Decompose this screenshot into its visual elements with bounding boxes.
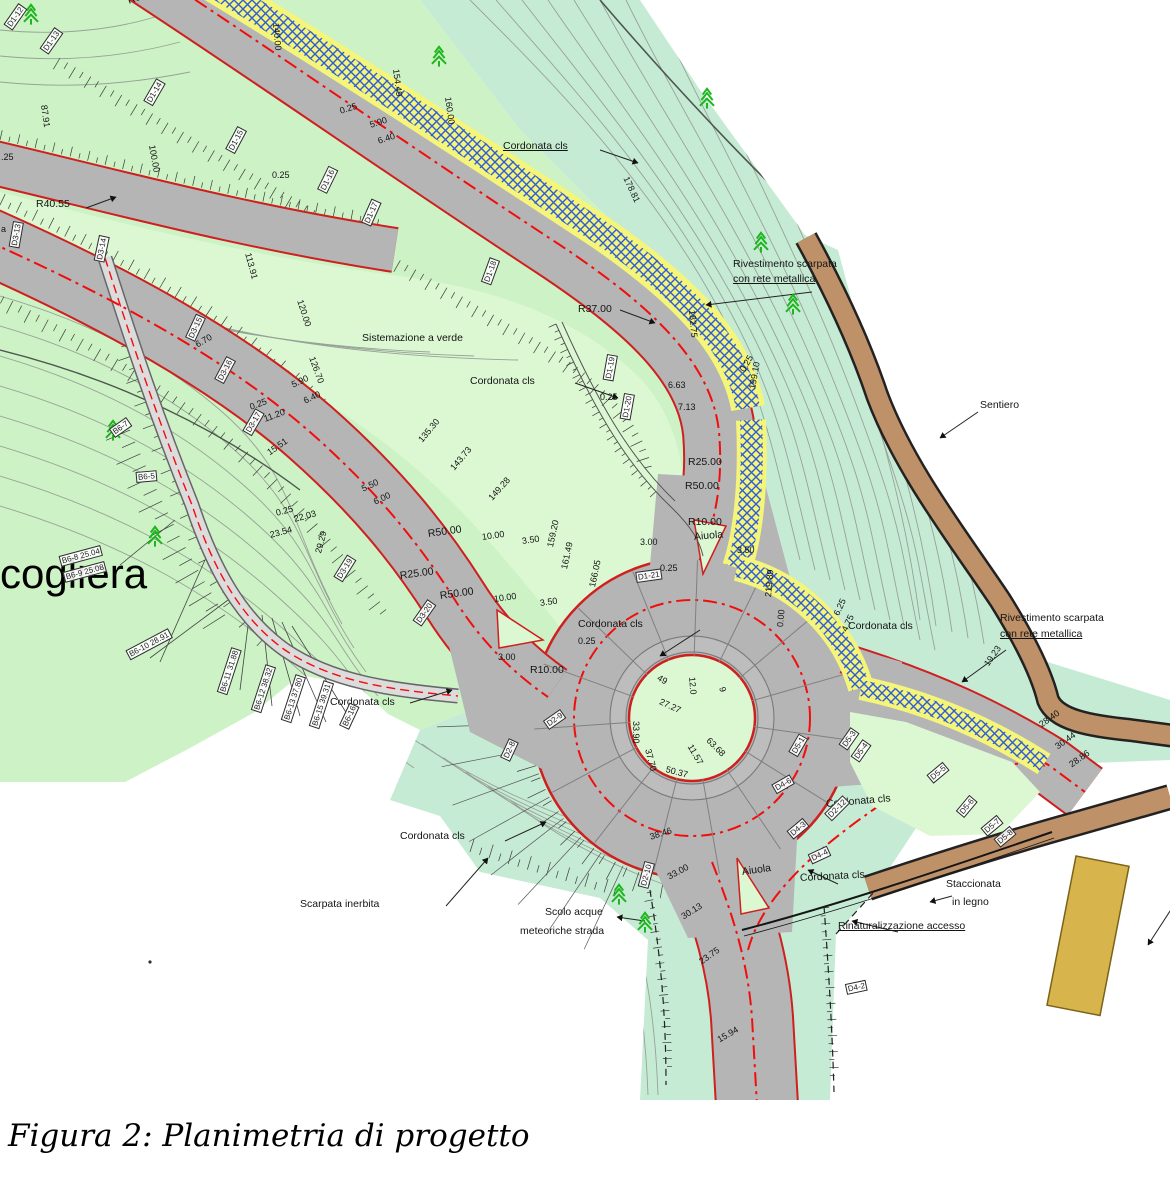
terrain: [0, 0, 1170, 1100]
document-page: Cordonata clsRivestimento scarpatacon re…: [0, 0, 1170, 1186]
building-footprint: [1047, 856, 1129, 1016]
site-plan: Cordonata clsRivestimento scarpatacon re…: [0, 0, 1170, 1100]
point-marker: [148, 960, 151, 963]
figure-caption: Figura 2: Planimetria di progetto: [8, 1118, 530, 1154]
site-plan-drawing: [0, 0, 1170, 1100]
